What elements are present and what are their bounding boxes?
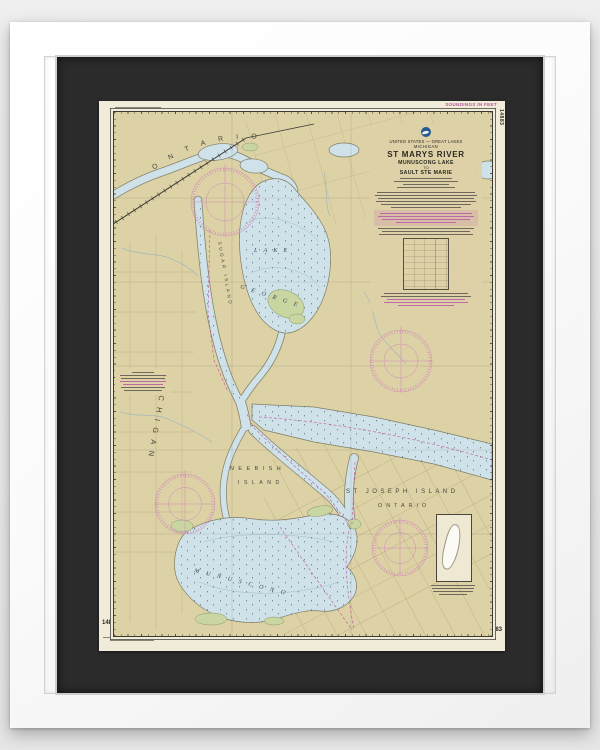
scale-notes (370, 178, 482, 188)
picture-frame: SOUNDINGS IN FEET 14883 14883 SOUNDINGS … (10, 22, 590, 728)
lower-notes (370, 293, 482, 306)
compass-rose-south (372, 516, 428, 576)
chart-title-block: UNITED STATES — GREAT LAKES MICHIGAN ST … (370, 125, 482, 311)
label-ontario-south: ONTARIO (378, 503, 430, 509)
black-mat: SOUNDINGS IN FEET 14883 14883 SOUNDINGS … (55, 55, 545, 695)
general-notes (370, 192, 482, 208)
index-inset-caption (430, 583, 476, 597)
label-sugar-island: SUGAR ISLAND (217, 241, 233, 306)
chart-subtitle-3: SAULT STE MARIE (370, 170, 482, 176)
title-state: MICHIGAN (370, 144, 482, 149)
chart-title: ST MARYS RIVER (370, 150, 482, 159)
label-st-joseph-island: ST JOSEPH ISLAND (346, 489, 459, 495)
neatline-ticks-top (114, 112, 492, 114)
chart-paper: SOUNDINGS IN FEET 14883 14883 SOUNDINGS … (99, 101, 505, 651)
noaa-emblem-icon (421, 127, 431, 137)
soundings-note-top: SOUNDINGS IN FEET (445, 102, 497, 107)
tabulation-table (403, 238, 449, 290)
photo-of-framed-chart: { "artwork": { "chart_number": "14883", … (0, 0, 600, 750)
chart-number-right-edge: 14883 (498, 109, 504, 125)
label-lake: LAKE (253, 247, 293, 254)
margin-note-topleft (115, 105, 161, 110)
compass-rose-east (370, 326, 432, 392)
neatline-ticks-bottom (114, 634, 492, 636)
more-notes (370, 228, 482, 235)
index-inset-map (436, 514, 472, 582)
neatline-ticks-right (490, 112, 492, 636)
left-note-block (115, 368, 171, 395)
label-neebish: NEEBISH (230, 466, 285, 472)
chart-map-area: ONTARIO MICHIGAN SUGAR ISLAND LAKE GEORG… (113, 111, 493, 637)
label-neebish-island: ISLAND (238, 480, 284, 486)
caution-note-magenta (374, 210, 478, 226)
